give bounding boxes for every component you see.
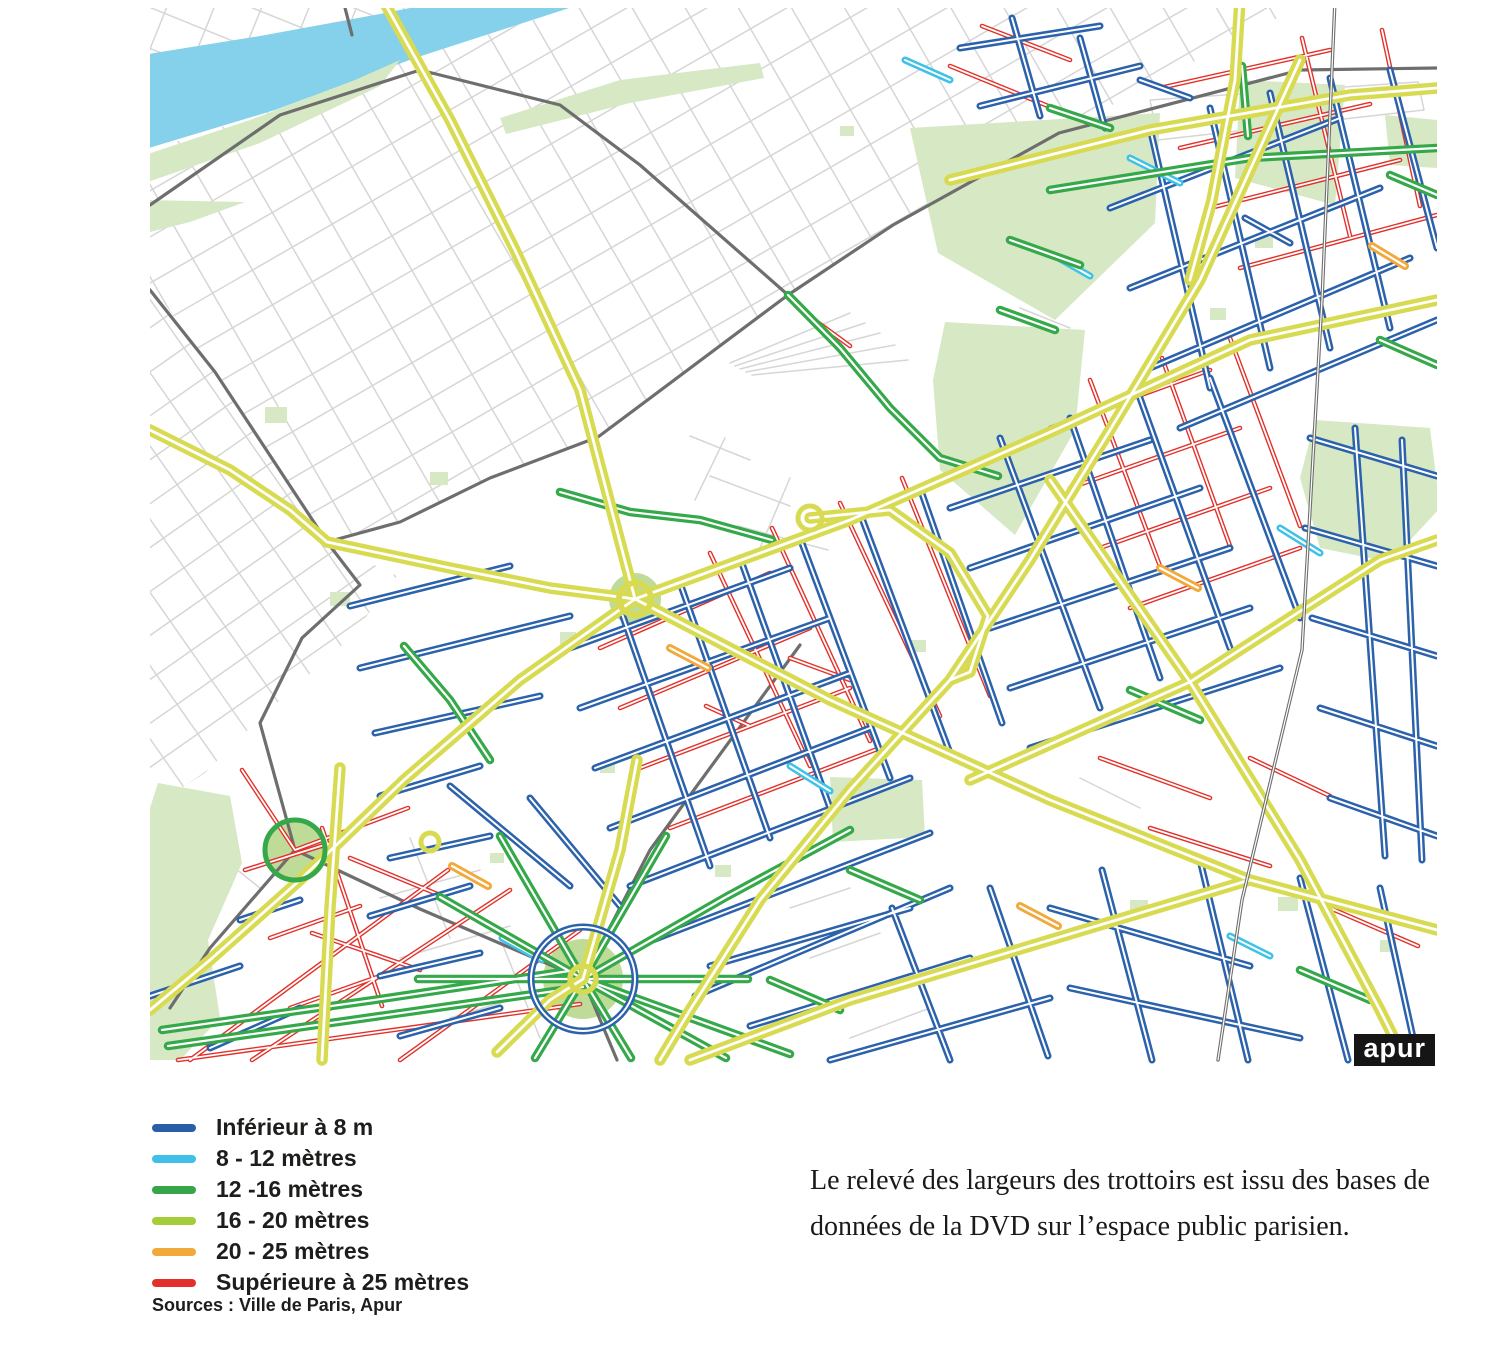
legend-swatch: [152, 1186, 196, 1194]
legend-swatch: [152, 1217, 196, 1225]
legend-item: 16 - 20 mètres: [152, 1205, 469, 1236]
legend-item: 20 - 25 mètres: [152, 1236, 469, 1267]
legend-swatch: [152, 1279, 196, 1287]
legend-label: 20 - 25 mètres: [216, 1238, 369, 1265]
legend-item: Inférieur à 8 m: [152, 1112, 469, 1143]
apur-logo: apur: [1354, 1034, 1435, 1066]
legend-swatch: [152, 1155, 196, 1163]
caption-text: Le relevé des largeurs des trottoirs est…: [810, 1158, 1470, 1250]
map-legend: Inférieur à 8 m8 - 12 mètres12 -16 mètre…: [152, 1112, 469, 1298]
sources-text: Sources : Ville de Paris, Apur: [152, 1295, 402, 1316]
legend-item: 12 -16 mètres: [152, 1174, 469, 1205]
legend-label: 8 - 12 mètres: [216, 1145, 357, 1172]
sidewalk-width-map-svg: [150, 8, 1437, 1068]
legend-label: 16 - 20 mètres: [216, 1207, 369, 1234]
legend-swatch: [152, 1248, 196, 1256]
legend-label: Inférieur à 8 m: [216, 1114, 373, 1141]
legend-label: 12 -16 mètres: [216, 1176, 363, 1203]
paris-map: apur: [150, 8, 1437, 1068]
legend-label: Supérieure à 25 mètres: [216, 1269, 469, 1296]
caption-line-2: de la DVD sur l’espace public parisien.: [909, 1211, 1350, 1242]
legend-item: 8 - 12 mètres: [152, 1143, 469, 1174]
park-top-center: [910, 113, 1160, 320]
legend-swatch: [152, 1124, 196, 1132]
legend-item: Supérieure à 25 mètres: [152, 1267, 469, 1298]
